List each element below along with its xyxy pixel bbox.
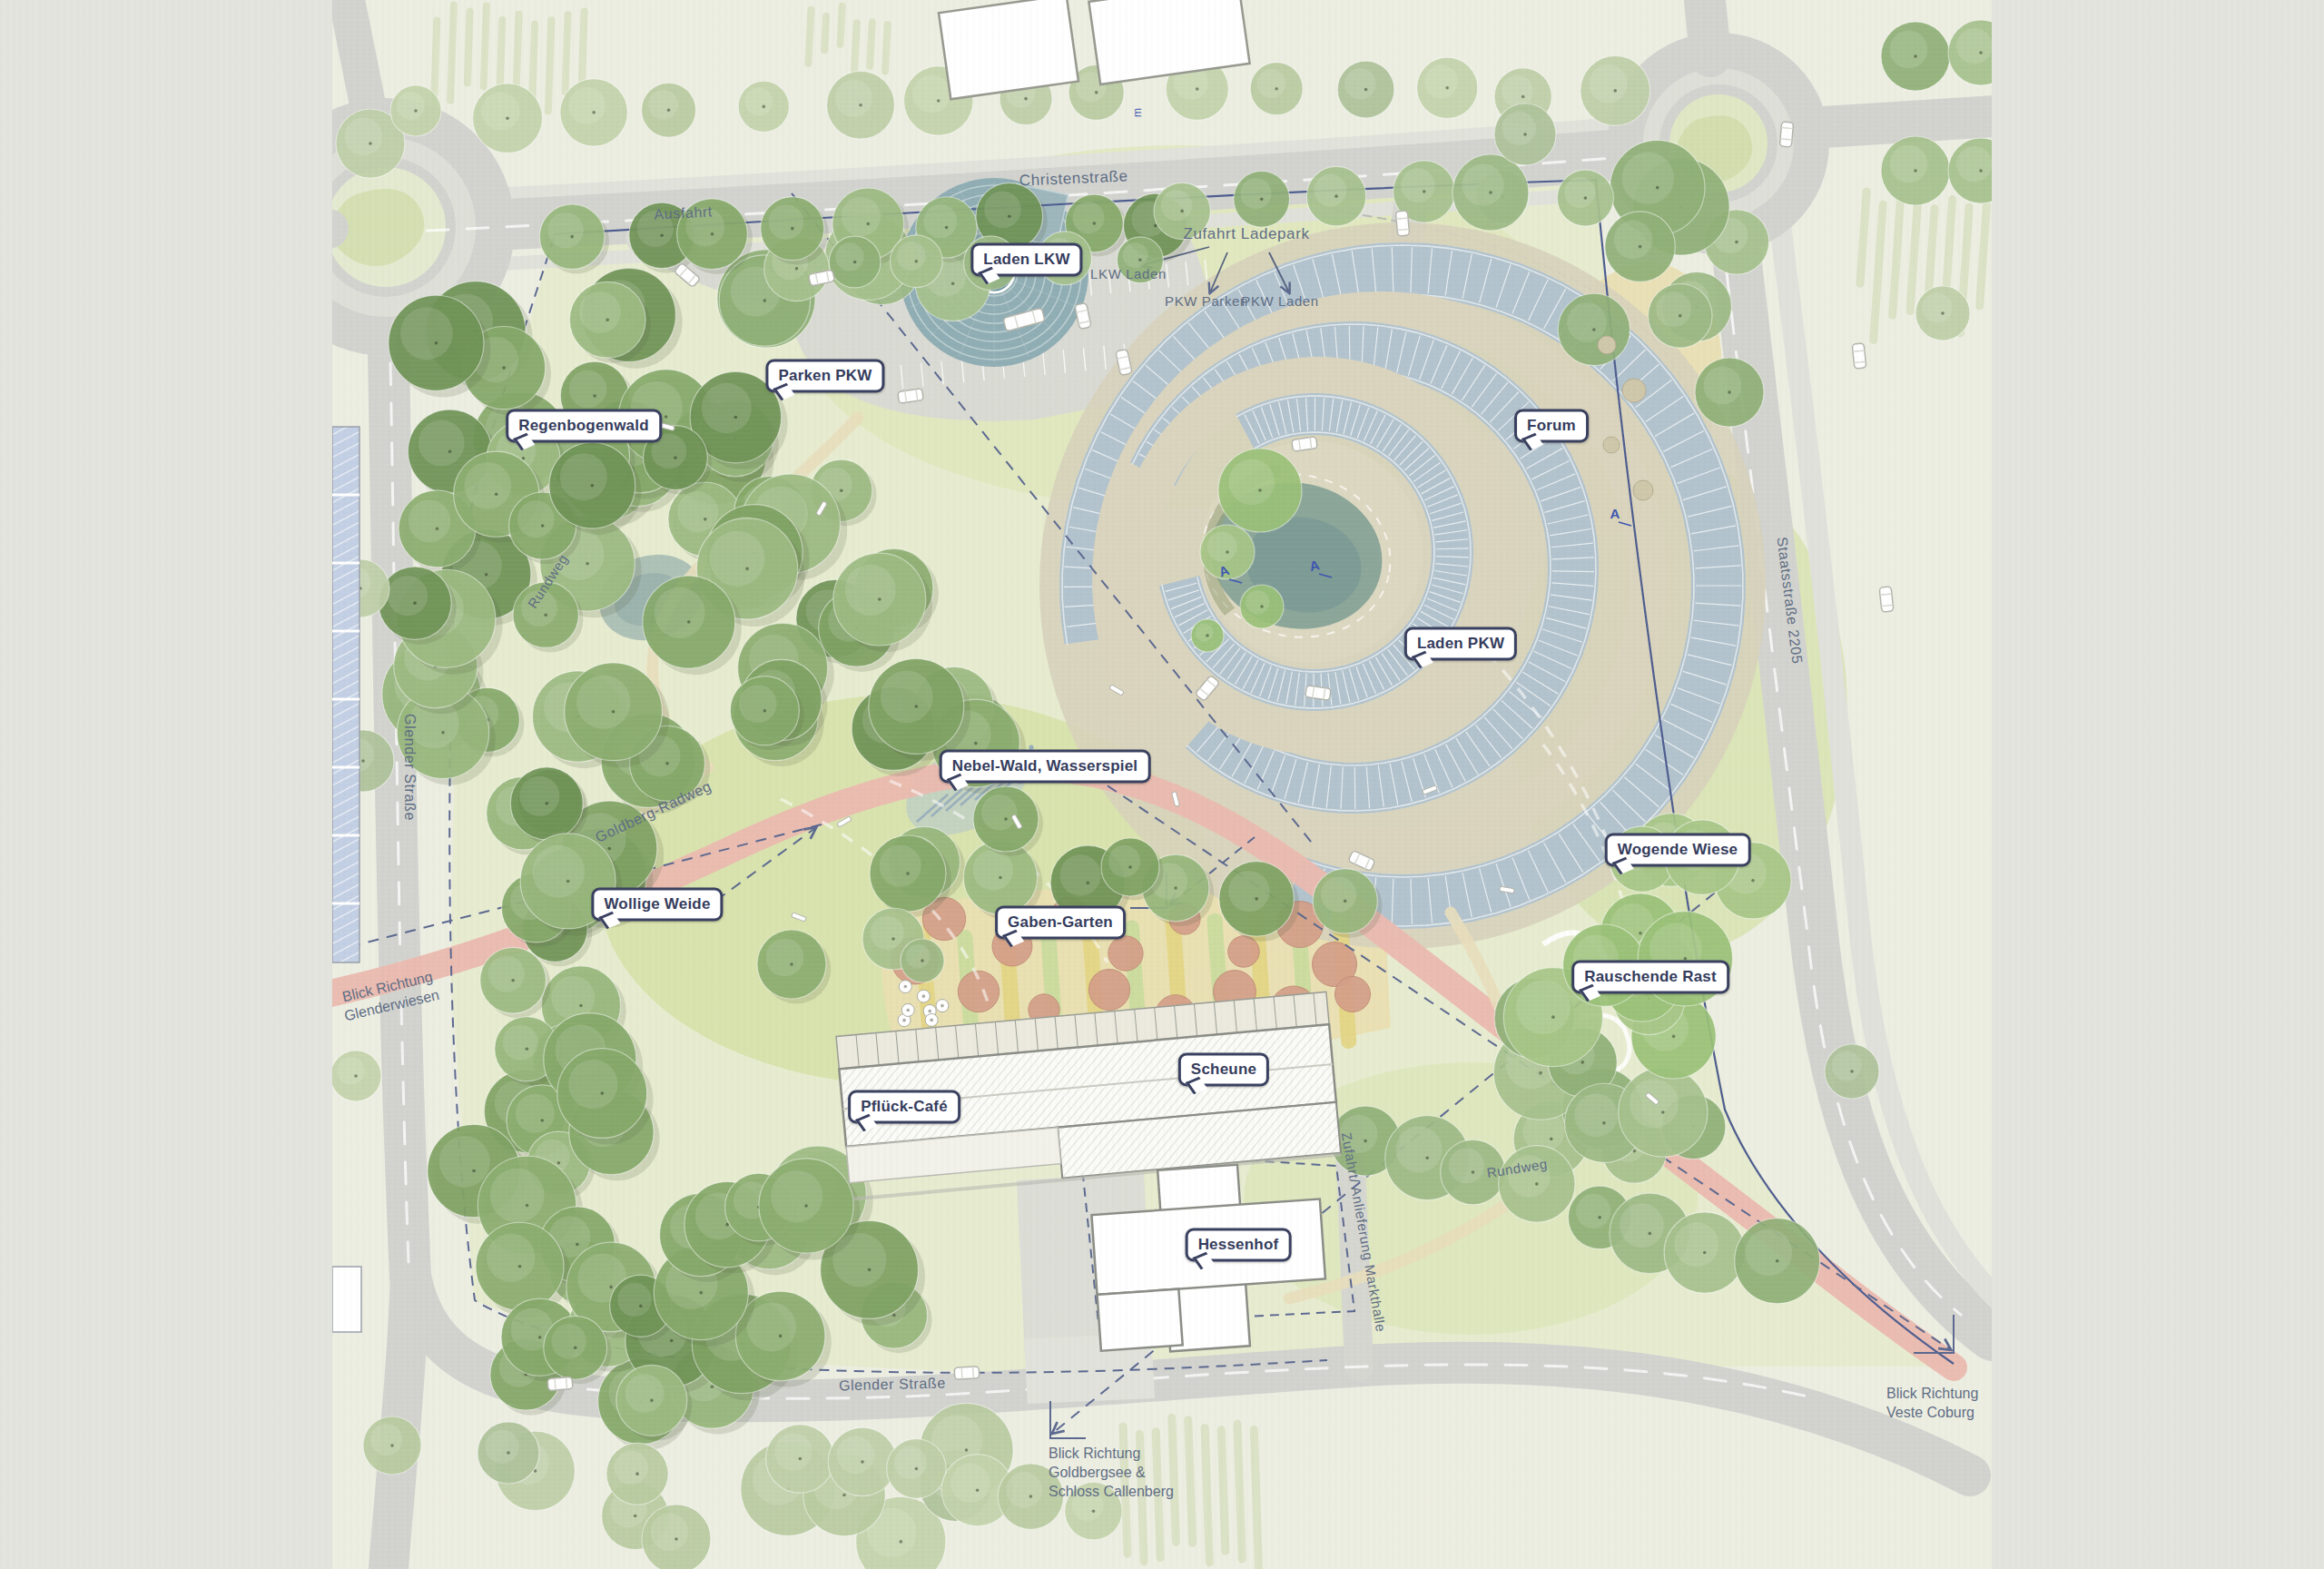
street-label-lkw-laden: LKW Laden <box>1090 266 1167 281</box>
site-plan-stage: ChristenstraßeAusfahrtZufahrt LadeparkLK… <box>0 0 2324 1569</box>
road-stub-nord-west <box>347 0 370 118</box>
street-label-pkw-parken: PKW Parken <box>1165 293 1248 309</box>
street-label-ausfahrt: Ausfahrt <box>654 203 713 222</box>
margin-right <box>1992 0 2324 1569</box>
survey-marker-m: m <box>1131 108 1144 117</box>
street-label-pkw-laden: PKW Laden <box>1241 293 1318 309</box>
building-top-1 <box>939 0 1078 99</box>
road-stub-nord-ost <box>1705 0 1710 56</box>
section-marker-a: A <box>1610 506 1620 521</box>
street-label-zufahrt-ladepark: Zufahrt Ladepark <box>1183 225 1309 242</box>
street-label-glender-strasse-sued: Glender Straße <box>839 1375 946 1393</box>
margin-left <box>0 0 332 1569</box>
site-plan-map: ChristenstraßeAusfahrtZufahrt LadeparkLK… <box>0 0 2324 1569</box>
street-label-glender-strasse-west: Glender Straße <box>402 714 418 821</box>
